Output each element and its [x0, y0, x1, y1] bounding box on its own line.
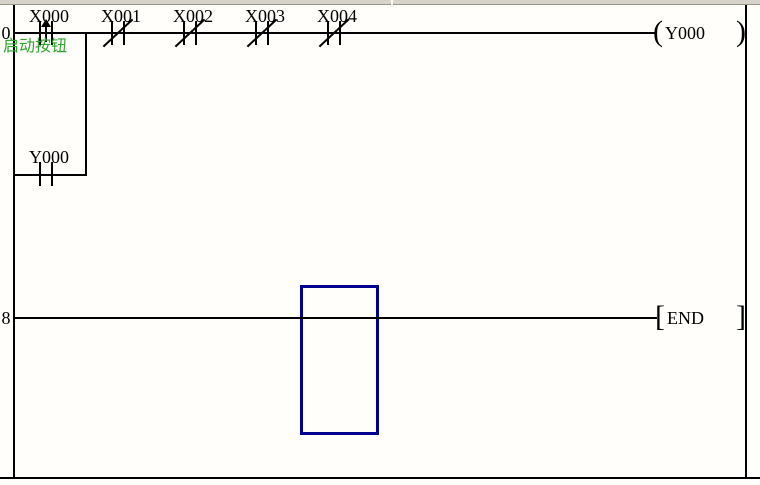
contact-bar-left	[111, 21, 113, 45]
device-label: X004	[301, 7, 373, 25]
coil-open-paren: (	[653, 17, 663, 47]
rising-edge-arrowhead-icon	[41, 19, 51, 27]
end-instruction-label: END	[667, 309, 704, 327]
end-open-bracket: [	[655, 302, 665, 332]
contact-x001[interactable]: X001	[85, 7, 157, 55]
ladder-editor-canvas: 0 8 X000 启动按钮 X001 X002 X003 X004	[0, 0, 760, 485]
toolbar-bottom-edge-left	[0, 0, 391, 5]
contact-bar-left	[327, 21, 329, 45]
end-close-bracket: ]	[736, 302, 746, 332]
device-label: X001	[85, 7, 157, 25]
device-label: Y000	[13, 148, 85, 166]
contact-x002[interactable]: X002	[157, 7, 229, 55]
rung-number-8: 8	[0, 309, 12, 327]
contact-y000-branch[interactable]: Y000	[13, 148, 85, 196]
device-label: X002	[157, 7, 229, 25]
contact-x003[interactable]: X003	[229, 7, 301, 55]
contact-x004[interactable]: X004	[301, 7, 373, 55]
toolbar-bottom-edge-right	[393, 0, 760, 5]
coil-y000[interactable]: ( Y000 )	[653, 18, 746, 48]
coil-close-paren: )	[736, 17, 746, 47]
edit-cursor[interactable]	[300, 285, 379, 435]
contact-bar-left	[183, 21, 185, 45]
device-comment: 启动按钮	[3, 38, 67, 56]
right-power-rail	[745, 5, 747, 478]
end-instruction[interactable]: [ END ]	[655, 303, 746, 333]
contact-bar-left	[39, 162, 41, 186]
contact-bar-right	[51, 162, 53, 186]
contact-bar-left	[255, 21, 257, 45]
left-power-rail	[13, 5, 15, 478]
device-label: X003	[229, 7, 301, 25]
ladder-bottom-edge	[0, 477, 760, 479]
wire-rung8	[13, 317, 657, 319]
coil-label: Y000	[665, 24, 705, 42]
